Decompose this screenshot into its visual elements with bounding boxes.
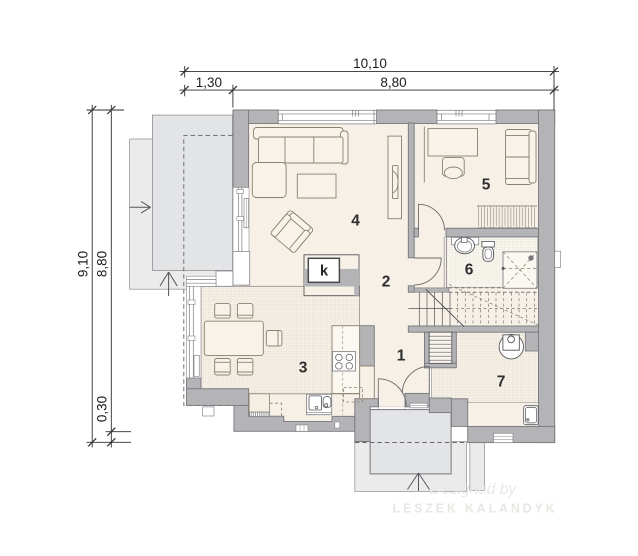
svg-text:LESZEK KALANDYK: LESZEK KALANDYK — [393, 502, 558, 516]
svg-text:5: 5 — [482, 177, 491, 194]
svg-text:10,10: 10,10 — [353, 56, 387, 71]
svg-text:2: 2 — [382, 274, 391, 291]
svg-text:9,10: 9,10 — [76, 251, 91, 277]
svg-text:1,30: 1,30 — [196, 75, 222, 90]
svg-text:8,80: 8,80 — [95, 251, 110, 277]
svg-text:6: 6 — [465, 262, 474, 279]
svg-text:8,80: 8,80 — [380, 75, 406, 90]
svg-text:4: 4 — [351, 213, 360, 230]
svg-text:Designed by: Designed by — [430, 481, 517, 498]
svg-text:3: 3 — [299, 360, 308, 377]
svg-text:7: 7 — [497, 374, 506, 391]
svg-text:1: 1 — [397, 348, 406, 365]
svg-text:k: k — [320, 264, 329, 280]
svg-text:0,30: 0,30 — [95, 396, 110, 422]
